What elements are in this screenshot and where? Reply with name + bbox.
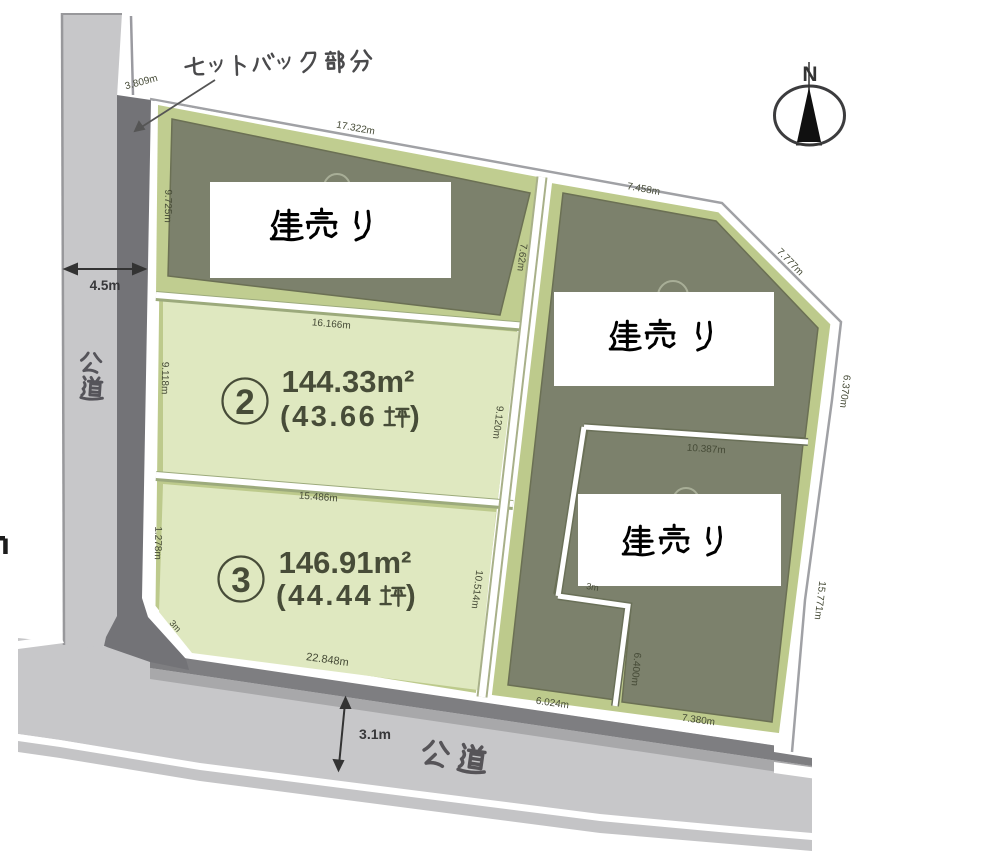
svg-text:146.91m²: 146.91m² xyxy=(279,545,412,580)
svg-text:(44.44: (44.44 xyxy=(276,580,373,612)
svg-text:3.809m: 3.809m xyxy=(124,73,159,92)
svg-text:N: N xyxy=(802,63,817,86)
svg-text:3.1m: 3.1m xyxy=(359,726,391,742)
svg-text:): ) xyxy=(410,401,420,433)
svg-text:15.771m: 15.771m xyxy=(812,580,828,620)
svg-text:1.278m: 1.278m xyxy=(152,526,164,560)
svg-text:(43.66: (43.66 xyxy=(280,401,377,433)
svg-text:3m: 3m xyxy=(585,581,599,593)
svg-text:144.33m²: 144.33m² xyxy=(282,364,415,399)
svg-text:3: 3 xyxy=(231,561,250,600)
svg-text:9.118m: 9.118m xyxy=(159,362,171,395)
svg-text:): ) xyxy=(406,580,416,612)
svg-text:9.725m: 9.725m xyxy=(162,189,174,223)
svg-text:2: 2 xyxy=(235,383,254,422)
svg-text:6.370m: 6.370m xyxy=(837,374,852,408)
svg-text:4.5m: 4.5m xyxy=(90,278,121,293)
